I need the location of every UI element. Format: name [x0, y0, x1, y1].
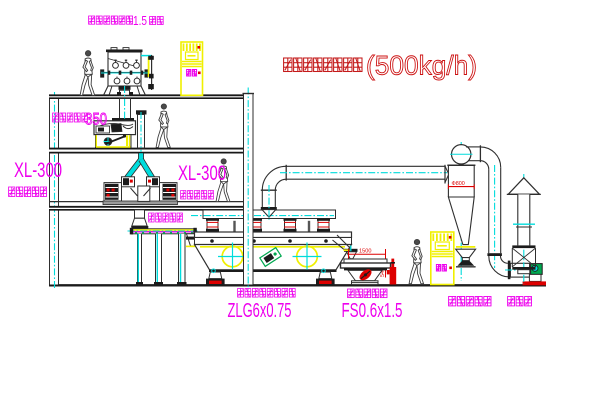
svg-text:ZLG6x0.75: ZLG6x0.75 [228, 300, 292, 322]
svg-text:XL-300: XL-300 [14, 159, 62, 182]
svg-text:350: 350 [85, 111, 107, 129]
svg-text:1.5: 1.5 [133, 13, 147, 28]
svg-text:FS0.6x1.5: FS0.6x1.5 [342, 300, 403, 322]
svg-text:XL-300: XL-300 [178, 162, 226, 185]
svg-text:1500: 1500 [359, 249, 371, 255]
svg-text:(500kg/h): (500kg/h) [366, 51, 477, 81]
